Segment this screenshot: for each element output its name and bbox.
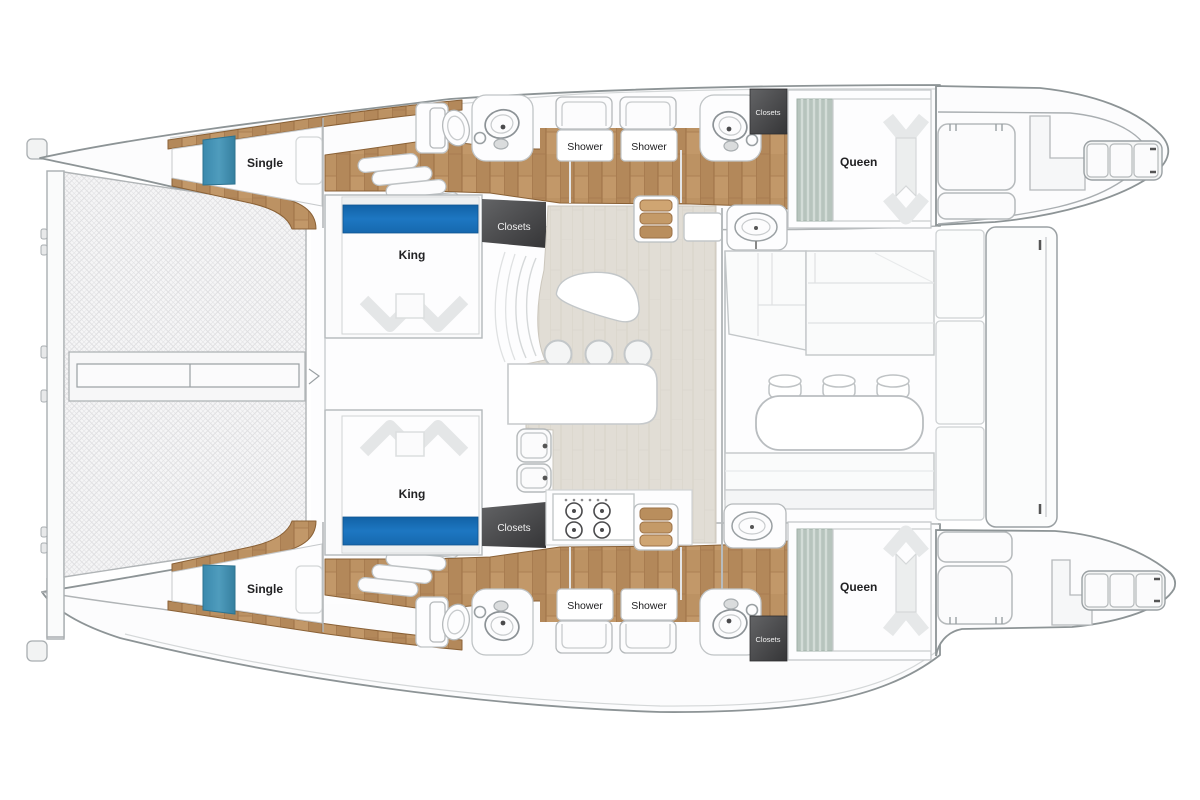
svg-text:Single: Single xyxy=(247,582,283,596)
svg-text:Shower: Shower xyxy=(631,600,667,612)
svg-text:King: King xyxy=(399,248,426,262)
svg-text:Shower: Shower xyxy=(567,600,603,612)
svg-text:King: King xyxy=(399,487,426,501)
svg-text:Shower: Shower xyxy=(567,141,603,153)
svg-text:Single: Single xyxy=(247,156,283,170)
svg-text:Queen: Queen xyxy=(840,155,877,169)
svg-text:Closets: Closets xyxy=(497,222,530,233)
svg-text:Shower: Shower xyxy=(631,141,667,153)
svg-text:Closets: Closets xyxy=(497,523,530,534)
svg-text:Closets: Closets xyxy=(755,635,780,644)
svg-text:Closets: Closets xyxy=(755,108,780,117)
svg-text:Queen: Queen xyxy=(840,580,877,594)
